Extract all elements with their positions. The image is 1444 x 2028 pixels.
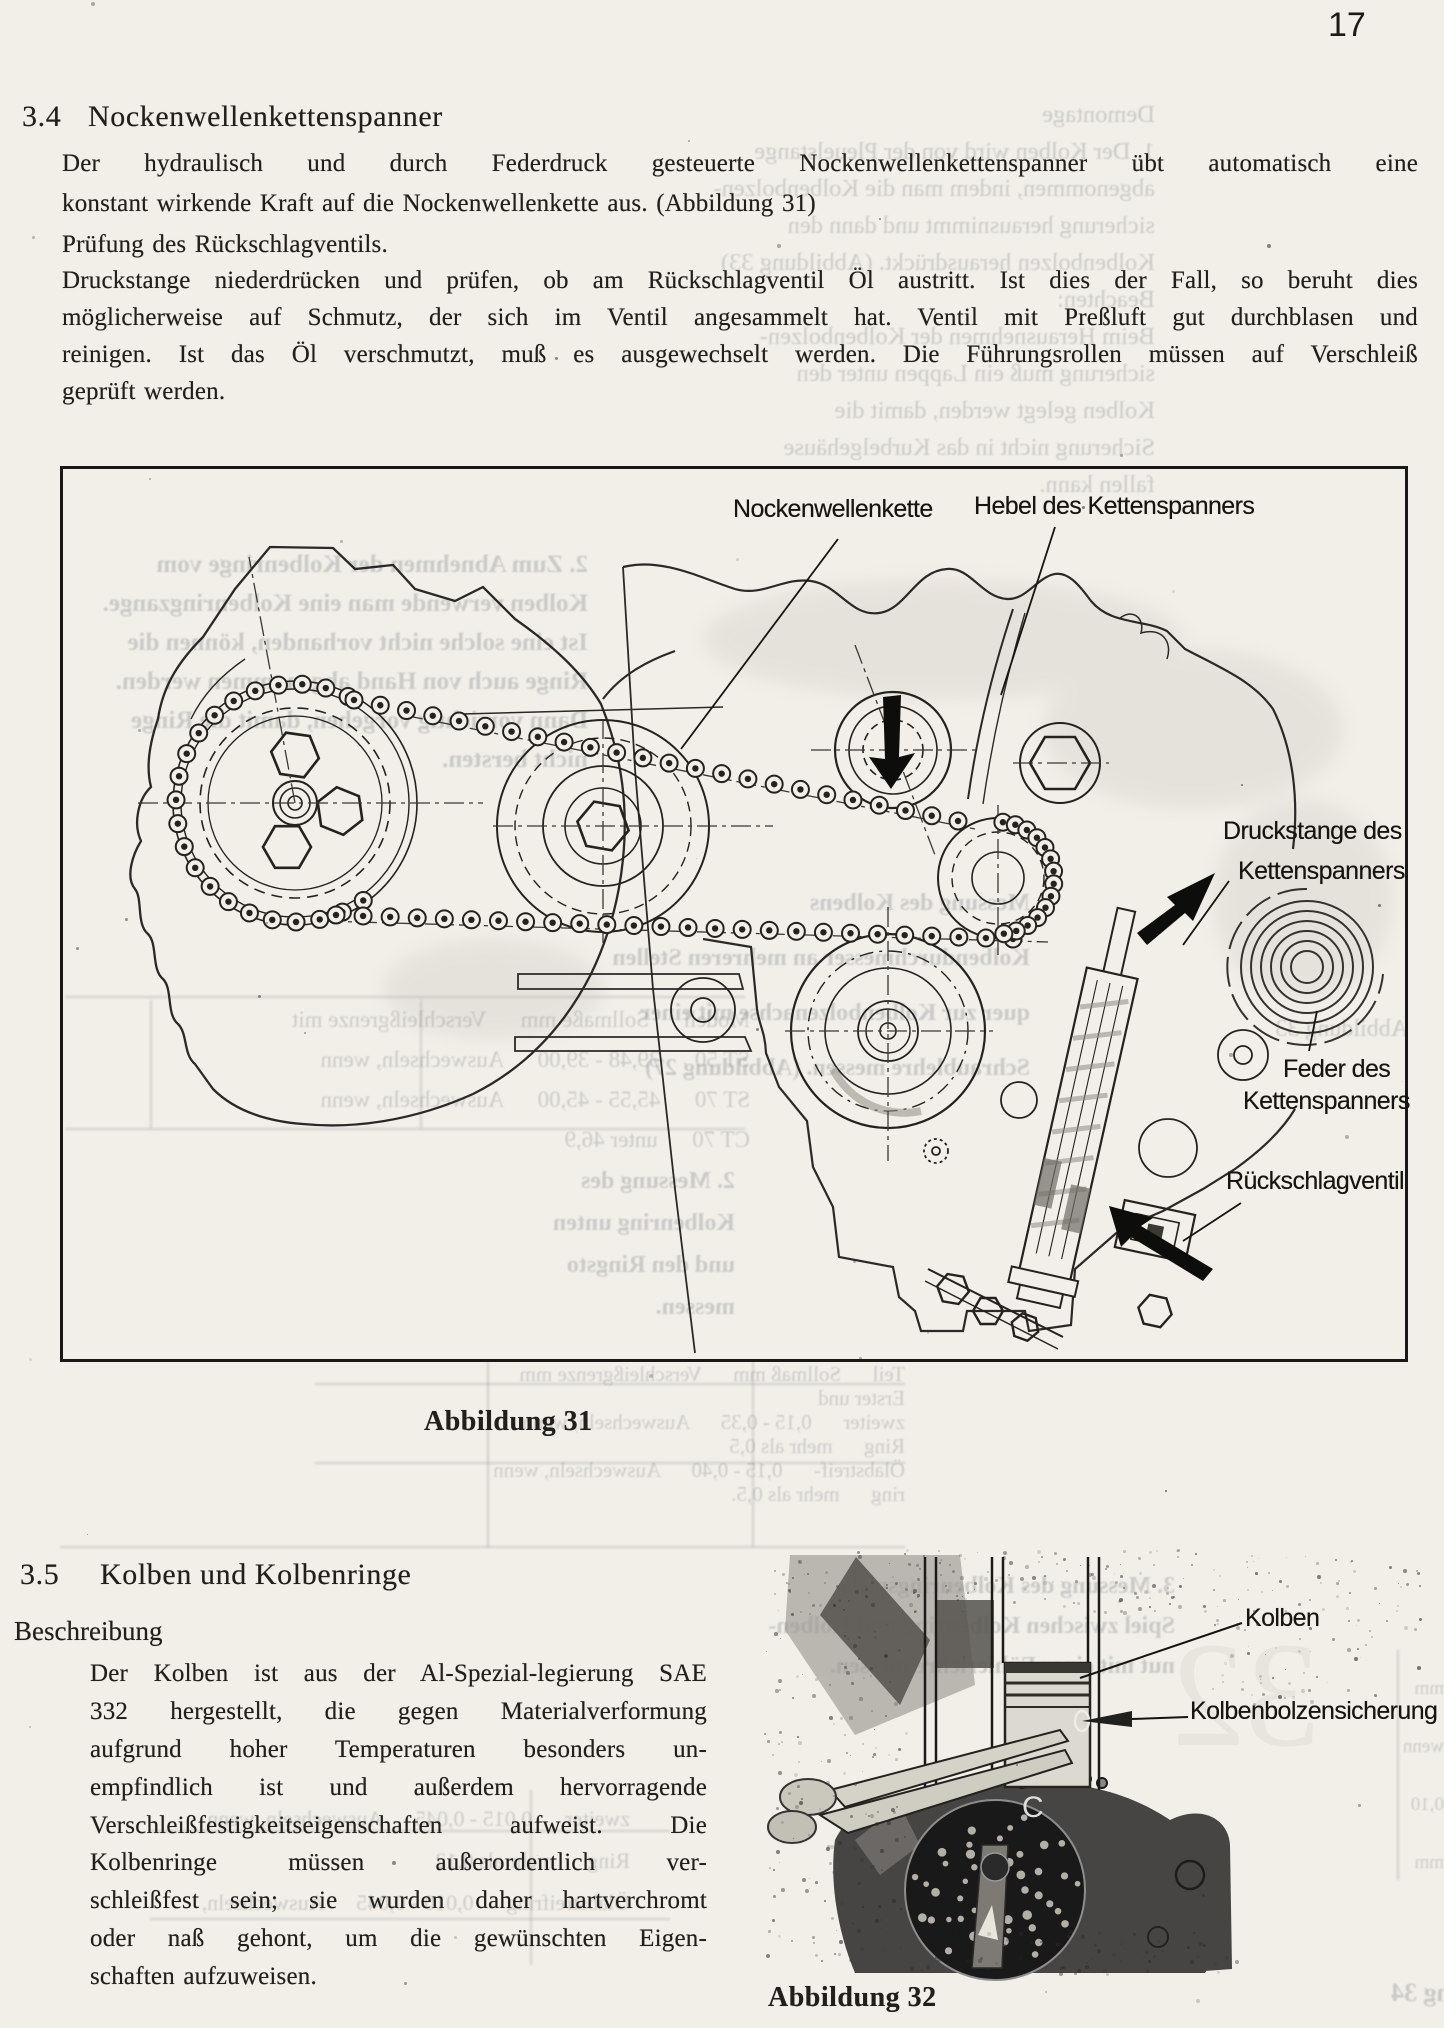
speckle — [1204, 1610, 1207, 1613]
speckle — [877, 1596, 878, 1597]
speckle — [792, 1697, 794, 1699]
speckle — [1120, 1564, 1121, 1565]
speckle — [1221, 1674, 1224, 1677]
speckle — [848, 1600, 850, 1602]
speckle — [887, 1821, 891, 1825]
speckle — [736, 558, 739, 561]
speckle — [1120, 454, 1123, 457]
speckle — [824, 1900, 826, 1902]
speckle — [792, 1577, 794, 1579]
speckle — [871, 1865, 875, 1869]
speckle — [1386, 1620, 1388, 1622]
stamp-letter: C — [1022, 1791, 1044, 1824]
speckle — [794, 1773, 798, 1777]
speckle — [1332, 1638, 1335, 1641]
para-line: reinigen. Ist das Öl verschmutzt, muß es… — [62, 341, 1418, 369]
label-spring-line1: Feder des — [1283, 1055, 1381, 1084]
speckle — [1097, 1949, 1101, 1953]
speckle — [1165, 1490, 1167, 1492]
label-pushrod-line1: Druckstange des — [1223, 817, 1381, 846]
speckle — [1357, 1648, 1359, 1650]
speckle — [1069, 1930, 1073, 1934]
speckle — [898, 1748, 901, 1751]
speckle — [1241, 1688, 1244, 1691]
speckle — [895, 1838, 899, 1842]
speckle — [1037, 1550, 1041, 1554]
speckle — [1353, 1570, 1356, 1573]
speckle — [815, 1678, 818, 1681]
speckle — [879, 218, 881, 220]
speckle — [778, 1935, 781, 1938]
speckle — [1255, 1572, 1258, 1575]
speckle — [1038, 1561, 1040, 1563]
speckle — [1251, 1694, 1253, 1696]
speckle — [891, 1808, 895, 1812]
speckle — [1217, 1971, 1220, 1974]
speckle — [1305, 1556, 1306, 1557]
speckle — [1196, 1999, 1200, 2003]
speckle — [850, 1815, 853, 1818]
label-spring-line2: Kettenspanners — [1243, 1087, 1381, 1116]
speckle — [1024, 1588, 1027, 1591]
speckle — [649, 1374, 653, 1378]
speckle — [1301, 1689, 1305, 1693]
speckle — [886, 1624, 888, 1626]
ghost-text-line: Sicherung nicht in das Kurbelgehäuse — [695, 429, 1155, 466]
speckle — [1190, 1960, 1194, 1964]
speckle — [1120, 1960, 1123, 1963]
speckle — [688, 140, 690, 142]
speckle — [1153, 1564, 1155, 1566]
speckle — [847, 1638, 849, 1640]
speckle — [773, 1895, 776, 1898]
speckle — [1103, 1969, 1107, 1973]
speckle — [1213, 1589, 1215, 1591]
speckle — [923, 1555, 925, 1557]
speckle — [886, 1584, 888, 1586]
speckle — [1310, 1700, 1314, 1704]
para-line: aufgrund hoher Temperaturen besonders un… — [90, 1736, 707, 1764]
speckle — [886, 1587, 888, 1589]
speckle — [1403, 1569, 1407, 1573]
speckle — [853, 1644, 857, 1648]
case-bolts — [671, 978, 1268, 1177]
speckle — [838, 1953, 841, 1956]
hub-bolts — [263, 733, 1090, 868]
section-34-title: Nockenwellenkettenspanner — [88, 100, 443, 134]
speckle — [1298, 1603, 1301, 1606]
speckle — [917, 1594, 920, 1597]
speckle — [1054, 1552, 1057, 1555]
speckle — [1286, 1585, 1289, 1588]
speckle — [1118, 1718, 1121, 1721]
section-35-title: Kolben und Kolbenringe — [100, 1558, 411, 1592]
speckle — [1285, 1610, 1287, 1612]
speckle — [1172, 590, 1175, 593]
speckle — [819, 1808, 821, 1810]
speckle — [877, 1811, 879, 1813]
speckle — [812, 1936, 815, 1939]
speckle — [833, 1604, 836, 1607]
speckle — [1120, 1575, 1123, 1578]
ghost-text-line: ring mehr als 0,5. — [320, 1482, 905, 1506]
speckle — [880, 1849, 884, 1853]
speckle — [1347, 1689, 1350, 1692]
speckle — [1082, 506, 1085, 509]
speckle — [1154, 1610, 1156, 1612]
speckle — [1358, 1804, 1361, 1807]
speckle — [1404, 1626, 1408, 1630]
speckle — [266, 922, 268, 924]
speckle — [1292, 1696, 1295, 1699]
speckle — [29, 1358, 32, 1361]
speckle — [916, 1564, 919, 1567]
speckle — [840, 1901, 844, 1905]
speckle — [786, 1582, 788, 1584]
speckle — [846, 1752, 848, 1754]
speckle — [1044, 1598, 1046, 1600]
speckle — [1417, 1666, 1421, 1670]
para-line: Der Kolben ist aus der Al-Spezial-legier… — [90, 1660, 707, 1688]
speckle — [1253, 1610, 1256, 1613]
speckle — [772, 1754, 774, 1756]
speckle — [1212, 1688, 1214, 1690]
speckle — [1303, 1672, 1305, 1674]
speckle — [781, 1888, 785, 1892]
speckle — [841, 1663, 843, 1665]
speckle — [1336, 1582, 1339, 1585]
speckle — [940, 1559, 942, 1561]
speckle — [1020, 1577, 1024, 1581]
speckle — [1262, 1693, 1265, 1696]
speckle — [1114, 1573, 1115, 1574]
speckle — [1225, 1956, 1229, 1960]
speckle — [1025, 1565, 1029, 1569]
speckle — [1284, 1697, 1286, 1699]
speckle — [980, 1957, 983, 1960]
speckle — [819, 1604, 822, 1607]
speckle — [1085, 1965, 1089, 1969]
speckle — [813, 1942, 815, 1944]
speckle — [1246, 1561, 1248, 1563]
speckle — [967, 1592, 969, 1594]
speckle — [974, 1582, 977, 1585]
speckle — [858, 1658, 860, 1660]
speckle — [791, 1613, 794, 1616]
speckle — [789, 1591, 791, 1593]
speckle — [778, 1679, 782, 1683]
para-line: oder naß gehont, um die gewünschten Eige… — [90, 1925, 707, 1953]
speckle — [945, 1585, 947, 1587]
speckle — [900, 1947, 902, 1949]
speckle — [798, 1560, 802, 1564]
speckle — [1299, 1638, 1301, 1640]
speckle — [149, 478, 151, 480]
para-line: geprüft werden. — [62, 378, 1418, 406]
speckle — [1317, 1575, 1321, 1579]
speckle — [1308, 1689, 1311, 1692]
speckle — [946, 1592, 948, 1594]
speckle — [1345, 1135, 1349, 1139]
figure-32-caption: Abbildung 32 — [768, 1982, 937, 2014]
speckle — [32, 236, 35, 239]
speckle — [984, 1577, 988, 1581]
speckle — [778, 1771, 782, 1775]
speckle — [855, 1590, 859, 1594]
speckle — [764, 1733, 766, 1735]
speckle — [1229, 1053, 1233, 1057]
speckle — [1397, 1605, 1399, 1607]
label-pushrod-line2: Kettenspanners — [1238, 857, 1381, 886]
speckle — [797, 1736, 799, 1738]
speckle — [1354, 1657, 1358, 1661]
speckle — [1040, 1941, 1042, 1943]
speckle — [766, 1954, 770, 1958]
speckle — [1056, 1563, 1058, 1565]
speckle — [1138, 1557, 1141, 1560]
speckle — [909, 1603, 913, 1607]
speckle — [1144, 1590, 1148, 1594]
speckle — [838, 1841, 842, 1845]
speckle — [858, 1555, 862, 1559]
speckle — [844, 1635, 846, 1637]
speckle — [800, 1611, 802, 1613]
speckle — [905, 1732, 908, 1735]
ghost-text-line: Erster und — [320, 1386, 905, 1410]
para-line: Der hydraulisch und durch Federdruck ges… — [62, 150, 1418, 178]
speckle — [1268, 1572, 1270, 1574]
speckle — [774, 1632, 778, 1636]
speckle — [1256, 1623, 1259, 1626]
speckle — [1223, 1599, 1226, 1602]
label-piston-pin-clip: Kolbenbolzensicherung — [1190, 1697, 1437, 1726]
speckle — [939, 1562, 941, 1564]
speckle — [1003, 1551, 1007, 1555]
speckle — [830, 1845, 834, 1849]
speckle — [862, 1743, 864, 1745]
section-34-number: 3.4 — [22, 100, 61, 134]
speckle — [791, 1940, 793, 1942]
speckle — [807, 1573, 809, 1575]
speckle — [1120, 1943, 1122, 1945]
speckle — [798, 1741, 802, 1745]
speckle — [1073, 1602, 1075, 1604]
speckle — [874, 1729, 875, 1730]
speckle — [795, 1805, 799, 1809]
speckle — [966, 1959, 970, 1963]
label-tensioner-lever: Hebel des Kettenspanners — [974, 492, 1254, 521]
speckle — [768, 1930, 771, 1933]
speckle — [1365, 1644, 1367, 1646]
ghost-watermark: 32 — [1170, 1612, 1320, 1778]
speckle — [995, 1579, 998, 1582]
speckle — [1043, 1581, 1047, 1585]
speckle — [1238, 1599, 1239, 1600]
speckle — [1244, 1629, 1246, 1631]
para-line: 332 hergestellt, die gegen Materialverfo… — [90, 1698, 707, 1726]
speckle — [1145, 1950, 1149, 1954]
speckle — [895, 1758, 898, 1761]
speckle — [853, 1260, 856, 1263]
section-35-number: 3.5 — [20, 1558, 59, 1592]
speckle — [960, 1576, 964, 1580]
speckle — [1213, 1569, 1215, 1571]
speckle — [857, 1929, 861, 1933]
speckle — [1195, 1553, 1197, 1555]
camchain-tensioner-drawing — [63, 469, 1405, 1359]
speckle — [1077, 1969, 1081, 1973]
speckle — [843, 1609, 845, 1611]
speckle — [802, 1878, 806, 1882]
speckle — [873, 1753, 876, 1756]
speckle — [1224, 1662, 1227, 1665]
page-number: 17 — [1328, 6, 1366, 45]
speckle — [1374, 1587, 1377, 1590]
speckle — [865, 1813, 867, 1815]
speckle — [1288, 1682, 1291, 1685]
speckle — [987, 1968, 990, 1971]
speckle — [1241, 784, 1243, 786]
speckle — [1309, 1627, 1312, 1630]
speckle — [1178, 1605, 1182, 1609]
speckle — [1059, 1972, 1063, 1976]
speckle — [938, 1550, 940, 1552]
speckle — [1092, 1576, 1096, 1580]
speckle — [1247, 1589, 1249, 1591]
speckle — [1066, 1570, 1068, 1572]
speckle — [1112, 1953, 1116, 1957]
speckle — [1081, 1935, 1085, 1939]
speckle — [815, 1881, 818, 1884]
speckle — [1074, 1972, 1077, 1975]
speckle — [963, 1656, 965, 1658]
ghost-text-line: Ring mehr als 0,5 — [320, 1434, 905, 1458]
figure-31-diagram: Nockenwellenkette Hebel des Kettenspanne… — [60, 466, 1408, 1362]
speckle — [340, 540, 343, 543]
speckle — [1104, 1611, 1107, 1614]
speckle — [799, 1801, 803, 1805]
speckle — [1417, 1572, 1420, 1575]
speckle — [862, 1906, 864, 1908]
speckle — [875, 1919, 879, 1923]
speckle — [860, 1947, 864, 1951]
speckle — [913, 1589, 917, 1593]
speckle — [859, 1697, 863, 1701]
speckle — [1136, 1596, 1139, 1599]
speckle — [872, 1756, 874, 1758]
speckle — [87, 1534, 88, 1535]
ghost-text-line: Demontage — [695, 96, 1155, 133]
speckle — [778, 1743, 780, 1745]
speckle — [1169, 1603, 1171, 1605]
para-line: schleißfest sein; sie wurden daher hartv… — [90, 1887, 707, 1915]
speckle — [827, 1759, 831, 1763]
photo-dark-shapes — [785, 1555, 994, 1735]
speckle — [1347, 1648, 1351, 1652]
speckle — [919, 1568, 921, 1570]
figure-31-caption: Abbildung 31 — [424, 1406, 593, 1438]
speckle — [1320, 1582, 1322, 1584]
para-line: möglicherweise auf Schmutz, der sich im … — [62, 304, 1418, 332]
speckle — [846, 1671, 850, 1675]
speckle — [1275, 1647, 1277, 1649]
speckle — [1123, 1611, 1127, 1615]
speckle — [839, 1940, 843, 1944]
speckle — [773, 1869, 775, 1871]
para-line: Druckstange niederdrücken und prüfen, ob… — [62, 267, 1418, 295]
sub-heading: Beschreibung — [14, 1616, 162, 1647]
speckle — [937, 1958, 941, 1962]
speckle — [1236, 1623, 1239, 1626]
speckle — [829, 1716, 833, 1720]
speckle — [1016, 1764, 1018, 1766]
speckle — [865, 1595, 868, 1598]
speckle — [1348, 1620, 1350, 1622]
speckle — [91, 2, 95, 6]
speckle — [1063, 1558, 1066, 1561]
speckle — [125, 918, 128, 921]
speckle — [963, 1936, 964, 1937]
speckle — [892, 1576, 894, 1578]
speckle — [826, 1781, 830, 1785]
speckle — [829, 1862, 832, 1865]
speckle — [1369, 1630, 1371, 1632]
speckle — [1214, 1963, 1217, 1966]
speckle — [1134, 1592, 1137, 1595]
speckle — [1056, 1943, 1060, 1947]
speckle — [1203, 1944, 1206, 1947]
speckle — [884, 1654, 888, 1658]
speckle — [1230, 1654, 1234, 1658]
speckle — [894, 1702, 898, 1706]
speckle — [1167, 1587, 1169, 1589]
speckle — [1086, 1962, 1088, 1964]
speckle — [1148, 1960, 1151, 1963]
para-line: Verschleißfestigkeitseigenschaften aufwe… — [90, 1812, 707, 1840]
speckle — [897, 1862, 899, 1864]
speckle — [927, 1332, 929, 1334]
speckle — [853, 1846, 857, 1850]
speckle — [1162, 1950, 1164, 1952]
speckle — [776, 1850, 780, 1854]
tensioner-cylinder — [1005, 902, 1159, 1310]
speckle — [871, 1603, 875, 1607]
speckle — [844, 1734, 846, 1736]
engine-cover-outline — [130, 547, 624, 1125]
speckle — [821, 1960, 823, 1962]
speckle — [769, 1867, 771, 1869]
speckle — [805, 1889, 809, 1893]
speckle — [1272, 1677, 1274, 1679]
speckle — [1063, 1605, 1066, 1608]
speckle — [849, 1716, 853, 1720]
speckle — [1009, 1561, 1013, 1565]
speckle — [29, 1726, 31, 1728]
speckle — [1133, 1933, 1136, 1936]
speckle — [1260, 1682, 1262, 1684]
speckle — [889, 1681, 891, 1683]
speckle — [1032, 1576, 1036, 1580]
speckle — [801, 1798, 803, 1800]
speckle — [1138, 1607, 1142, 1611]
para-line: empfindlich ist und außerdem hervorragen… — [90, 1774, 707, 1802]
label-camchain: Nockenwellenkette — [733, 495, 933, 524]
speckle — [858, 1882, 861, 1885]
speckle — [1077, 1602, 1080, 1605]
speckle — [797, 1785, 800, 1788]
speckle — [860, 1858, 864, 1862]
speckle — [833, 1795, 835, 1797]
